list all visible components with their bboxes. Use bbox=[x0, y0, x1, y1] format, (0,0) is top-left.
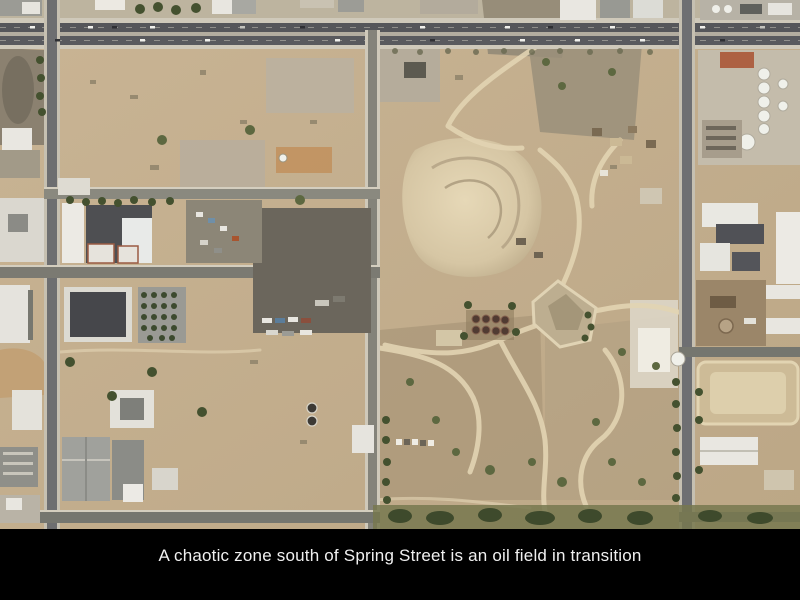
aerial-photo bbox=[0, 0, 800, 529]
industrial-facility-east bbox=[696, 50, 800, 490]
red-roof-building bbox=[720, 52, 754, 68]
equipment-yard bbox=[696, 280, 766, 346]
presentation-slide: A chaotic zone south of Spring Street is… bbox=[0, 0, 800, 600]
street-horizontal-lower bbox=[0, 510, 380, 523]
street-horizontal-upper bbox=[44, 187, 380, 199]
parking-lot-west bbox=[0, 447, 38, 487]
street-vertical-right bbox=[679, 0, 695, 529]
street-horizontal-right-upper bbox=[679, 347, 800, 357]
tree-parking-lot bbox=[138, 287, 186, 343]
graded-pad bbox=[698, 362, 798, 424]
aerial-photo-canvas bbox=[0, 0, 800, 529]
small-structure-row bbox=[396, 439, 434, 446]
oil-tank-cluster bbox=[466, 310, 514, 340]
photo-caption: A chaotic zone south of Spring Street is… bbox=[0, 541, 800, 571]
south-tree-line bbox=[373, 505, 800, 529]
water-tank bbox=[671, 352, 685, 366]
street-vertical-left bbox=[44, 0, 60, 529]
